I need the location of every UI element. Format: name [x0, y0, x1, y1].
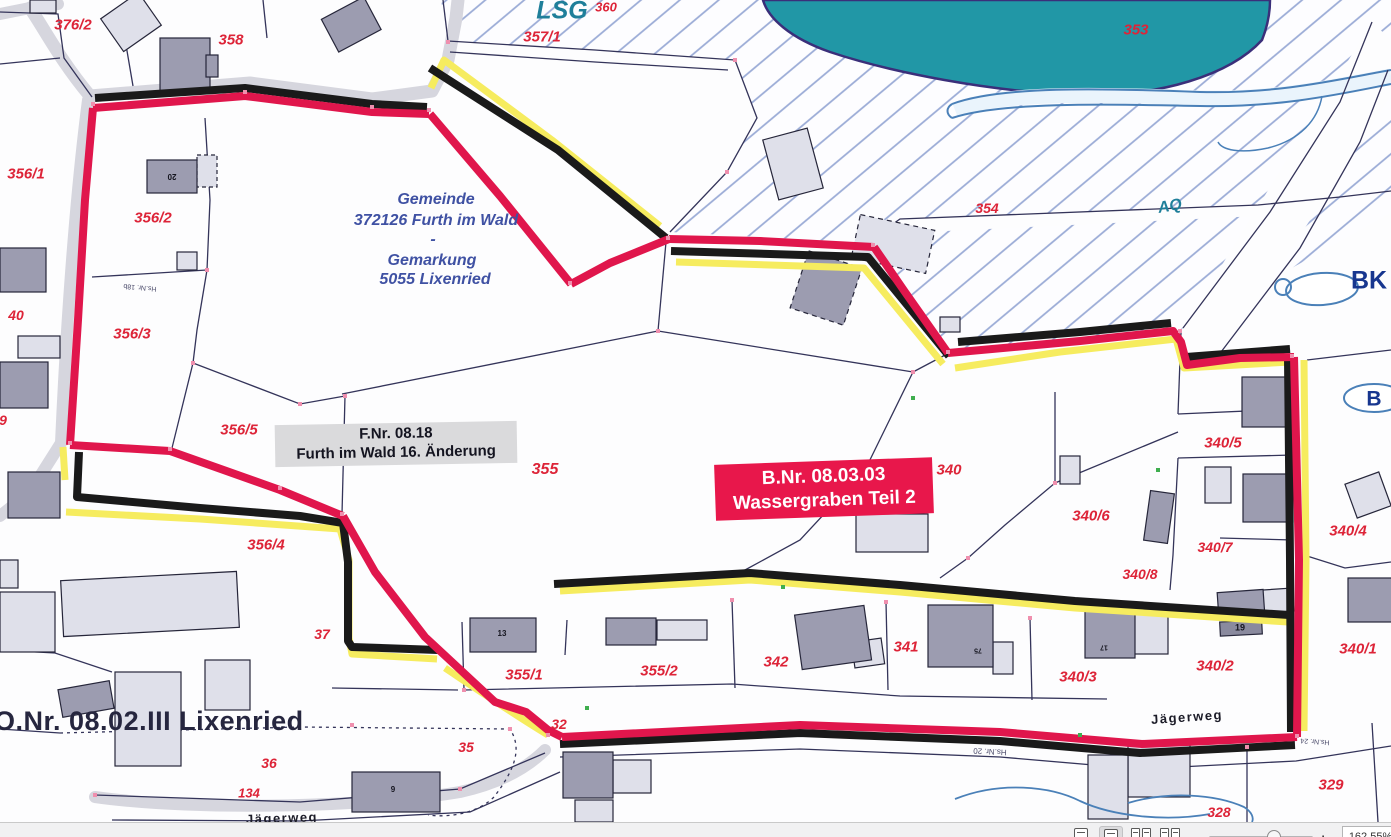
viewer-window: 376/2358357/1360353354356/1356/2356/3356…	[0, 0, 1391, 837]
viewer-toolbar: − + 162,55% ▾	[0, 822, 1391, 837]
fnr-line2: Furth im Wald 16. Änderung	[275, 442, 517, 465]
two-page-icon	[1131, 828, 1151, 837]
zoom-out-button[interactable]: −	[1194, 832, 1203, 837]
map-document-canvas[interactable]	[0, 0, 1391, 822]
book-view-button[interactable]	[1159, 826, 1181, 837]
fnr-annotation-box: F.Nr. 08.18 Furth im Wald 16. Änderung	[275, 421, 518, 467]
zoom-slider[interactable]	[1209, 830, 1313, 837]
continuous-page-icon	[1104, 829, 1118, 837]
zoom-level-field[interactable]: 162,55%	[1342, 826, 1391, 837]
book-view-icon	[1160, 828, 1180, 837]
cadastral-map-drawing	[0, 0, 1391, 822]
zoom-slider-thumb[interactable]	[1267, 830, 1281, 837]
single-page-view-button[interactable]	[1070, 826, 1092, 837]
two-page-view-button[interactable]	[1130, 826, 1152, 837]
zoom-in-button[interactable]: +	[1319, 832, 1328, 837]
continuous-page-view-button[interactable]	[1099, 826, 1123, 837]
bnr-annotation-box: B.Nr. 08.03.03 Wassergraben Teil 2	[714, 457, 934, 521]
single-page-icon	[1074, 828, 1088, 837]
